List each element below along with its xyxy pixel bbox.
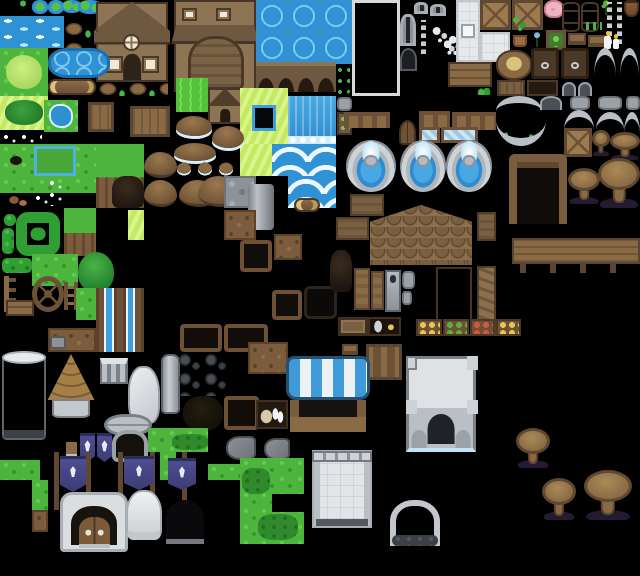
tile-shadow-tree xyxy=(330,250,352,292)
tile-dirt-patch xyxy=(274,234,302,260)
tile-well-arc xyxy=(620,48,639,76)
tile-hedge-ring xyxy=(16,212,60,256)
tile-dock xyxy=(512,238,640,264)
tile-framed-pit xyxy=(224,396,259,430)
tile-white-keep xyxy=(312,450,372,528)
tile-stone-furnace xyxy=(385,270,401,312)
tile-wagon-wheel xyxy=(32,276,64,312)
tile-plank-fence xyxy=(6,300,34,316)
tile-trapdoor xyxy=(531,48,559,79)
tile-barrel xyxy=(562,2,580,32)
tile-stone-spout xyxy=(226,436,256,460)
tile-market-counter xyxy=(368,317,401,336)
tile-plank-bridge xyxy=(130,106,170,137)
tile-well-rim xyxy=(564,110,594,130)
tile-water-ripple-block xyxy=(256,0,352,64)
tile-hut xyxy=(208,88,242,124)
tile-moss-stone xyxy=(626,96,640,110)
tile-hedge-dot xyxy=(4,214,16,226)
tile-pedestal-table xyxy=(516,428,550,468)
tile-stone-bit xyxy=(402,271,415,289)
tile-stone-chimney xyxy=(337,97,352,111)
tile-trapdoor xyxy=(561,48,589,79)
tile-grass-shadow-patch xyxy=(172,434,208,450)
tile-grass-strip xyxy=(0,177,48,193)
tile-framed-pit xyxy=(180,324,222,352)
tile-white-flowers xyxy=(46,178,66,206)
tile-bench xyxy=(568,33,586,45)
tile-mushrooms xyxy=(6,194,28,206)
tile-small-arch xyxy=(562,82,576,96)
tile-wave-arcs xyxy=(272,144,336,176)
tile-grass-shadow-patch xyxy=(242,468,270,494)
tile-white-flowers xyxy=(0,132,42,144)
tile-moss-stone xyxy=(570,96,590,110)
tile-pedestal-table xyxy=(592,130,610,156)
tile-market-stall xyxy=(286,356,370,432)
tile-lime-tile-hole xyxy=(240,88,288,144)
tile-corn-crate xyxy=(416,319,442,336)
tile-barn-window xyxy=(216,8,231,21)
tile-island-mound xyxy=(212,126,244,148)
tile-drawer-desk xyxy=(366,344,402,380)
tile-island-mounds-row xyxy=(174,160,238,177)
tile-stone-spout xyxy=(264,438,290,460)
tile-dirt-ledge xyxy=(32,510,48,532)
tile-lime-tile xyxy=(240,144,272,176)
tile-cliff-column xyxy=(64,208,96,256)
tile-pedestal-table xyxy=(598,158,640,208)
tile-statue xyxy=(126,490,162,540)
tile-boulder-cluster xyxy=(62,18,98,48)
tile-island-mound xyxy=(176,116,212,136)
tile-crate xyxy=(564,128,592,157)
tile-grass-strip xyxy=(0,460,40,480)
tile-framed-pit xyxy=(272,290,302,320)
tile-pig xyxy=(544,0,564,18)
tile-roof-junction xyxy=(350,194,384,216)
tile-herb-row xyxy=(586,22,602,30)
tile-dark-doorway xyxy=(166,500,204,544)
tile-black-notch xyxy=(272,494,304,512)
tile-grass-island-ring xyxy=(34,146,76,176)
tile-coal-rocks xyxy=(176,352,228,396)
tile-fountain xyxy=(346,140,396,192)
tile-post-fence xyxy=(344,112,390,128)
tile-stone-hoop xyxy=(390,500,440,546)
tile-dirt-tile xyxy=(224,210,256,240)
tile-stool xyxy=(342,344,358,355)
tile-portcullis xyxy=(400,14,416,46)
tile-lilypad xyxy=(32,0,48,14)
tile-grass-shadow-patch xyxy=(258,514,298,540)
tile-roof-slope xyxy=(477,212,496,241)
tile-post-fence xyxy=(419,111,450,128)
tile-dirt-block xyxy=(248,342,288,374)
tile-grass-tuft xyxy=(477,88,491,95)
tile-banner xyxy=(97,433,112,462)
tile-clover-box xyxy=(546,30,566,50)
tile-pedestal-table xyxy=(610,132,640,160)
tile-wall-sign xyxy=(461,24,475,38)
tile-grass-pond xyxy=(44,100,78,132)
tile-thatch-tower xyxy=(46,354,96,418)
tile-dark-stump xyxy=(112,176,144,208)
tile-log xyxy=(294,198,320,212)
tile-bright-grass xyxy=(176,78,208,112)
tile-silo xyxy=(2,352,46,440)
tile-vine-pillar xyxy=(336,64,350,94)
tile-plank-bridge xyxy=(88,102,114,132)
tile-banner xyxy=(60,456,86,492)
tile-lime-chunk xyxy=(128,210,144,240)
tile-waterfall xyxy=(288,96,336,144)
tile-wood-trim xyxy=(371,271,384,310)
tile-bush-ball xyxy=(78,252,114,292)
tile-well-rim xyxy=(596,112,624,130)
tile-crate xyxy=(480,0,511,30)
tile-dirt-mound xyxy=(144,180,177,207)
tile-rock-row xyxy=(96,78,168,96)
tile-dirt-mound xyxy=(144,152,177,178)
tile-small-arch xyxy=(578,82,592,96)
tile-house-round-window xyxy=(123,34,140,51)
tile-banner xyxy=(168,458,196,490)
tile-fountain xyxy=(400,140,446,192)
tile-barn-window xyxy=(182,8,197,21)
tile-white-flowers xyxy=(32,193,48,206)
tile-stone-gateway xyxy=(60,492,128,552)
tile-stump-table xyxy=(496,50,532,80)
tile-corn-crate xyxy=(496,319,521,336)
tile-stone-bit xyxy=(402,291,412,305)
tileset-canvas xyxy=(0,0,640,576)
tile-plank-fence xyxy=(448,62,492,87)
tile-banner-pole xyxy=(54,452,59,510)
tile-stone-monument xyxy=(100,358,128,384)
tile-hedge-row xyxy=(2,258,32,273)
tile-moss-stone xyxy=(598,96,622,110)
tile-castle-wall xyxy=(352,0,400,96)
tile-pedestal-table xyxy=(568,168,600,204)
tile-dirt-mound-clover xyxy=(14,0,32,14)
tile-small-arch xyxy=(540,96,562,110)
tile-log xyxy=(48,79,96,95)
tile-well-rim xyxy=(624,112,640,134)
tile-small-cage xyxy=(414,2,428,14)
tile-fountain xyxy=(446,140,492,192)
tile-roof-corner xyxy=(336,217,369,240)
tile-wood-gate xyxy=(509,154,567,224)
tile-grass-light-bush xyxy=(0,48,48,96)
tile-grass-ledge xyxy=(32,480,48,510)
tile-wood-sign xyxy=(338,317,368,336)
tile-urn xyxy=(624,0,639,17)
tile-dark-bush xyxy=(183,396,223,431)
tile-bottle-shelf xyxy=(256,400,288,429)
tile-ripple-pool xyxy=(48,48,110,78)
tile-hanging-chain xyxy=(421,20,426,54)
tile-metal-cart xyxy=(50,336,66,349)
tile-dark-arch-door xyxy=(400,48,417,71)
tile-grass-row xyxy=(208,464,240,480)
tile-water-wave-tiles xyxy=(0,16,64,48)
tile-hedge-column xyxy=(2,228,14,254)
tile-banner xyxy=(124,456,154,490)
tile-castle-gatehouse xyxy=(406,356,476,452)
tile-pedestal-table xyxy=(584,470,632,520)
tile-lime-tile-bush xyxy=(0,96,48,130)
tile-burrow-hole xyxy=(10,156,22,165)
tile-well-smile xyxy=(496,120,546,146)
tile-wood-hatch xyxy=(497,80,525,96)
tile-greens-crate xyxy=(443,319,469,336)
tile-well-arc xyxy=(594,48,616,76)
tile-well-rim xyxy=(496,96,542,111)
tile-small-cage xyxy=(430,4,446,16)
tile-island-mound xyxy=(174,143,216,161)
tile-framed-pit xyxy=(240,240,272,272)
tile-candle xyxy=(613,39,619,49)
tile-house-window xyxy=(142,56,159,73)
tile-potted-plant xyxy=(508,14,532,47)
tile-hip-roof xyxy=(370,205,472,265)
tile-blue-flower xyxy=(532,32,542,47)
tile-waterfall-cliff xyxy=(96,288,144,352)
tile-tomato-crate xyxy=(470,319,495,336)
tile-pedestal-table xyxy=(542,478,576,520)
tile-dark-hatch xyxy=(527,80,558,96)
tile-wood-trim xyxy=(354,268,370,310)
